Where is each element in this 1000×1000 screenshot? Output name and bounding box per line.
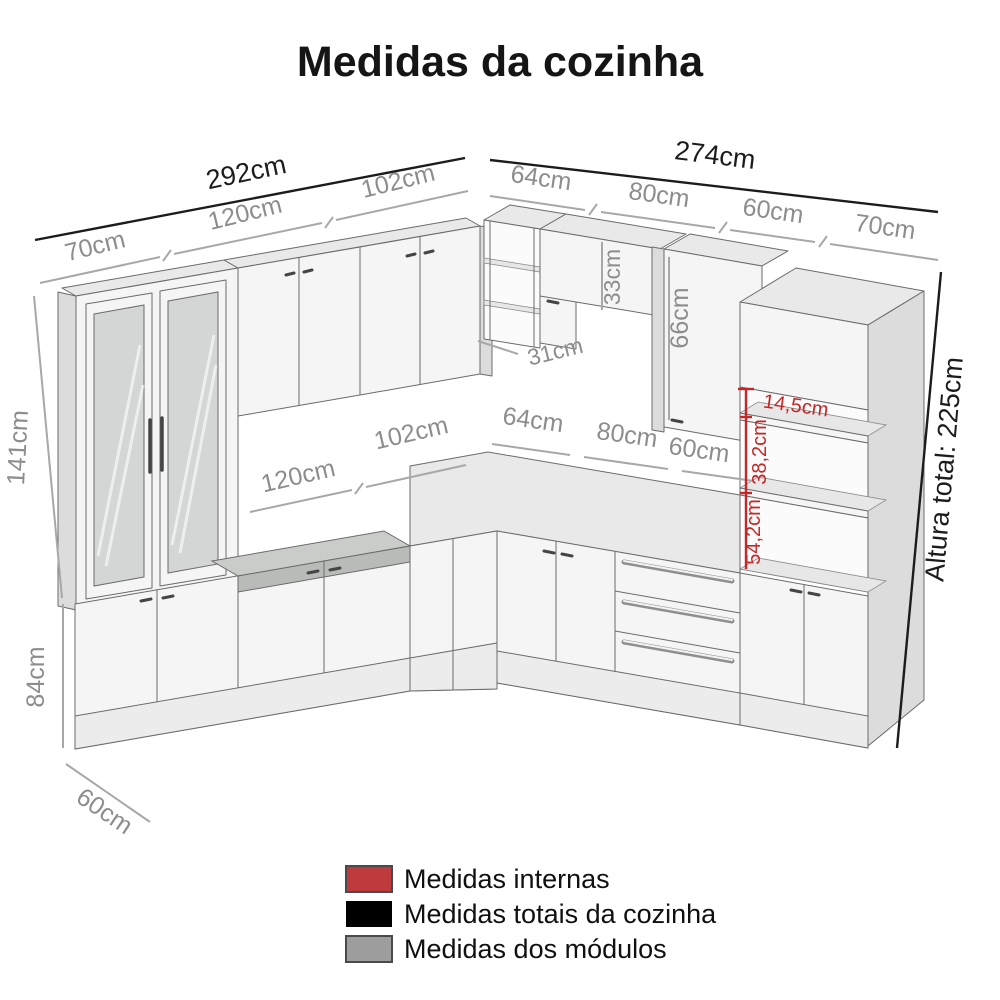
dim-tick — [355, 483, 363, 494]
dim-33: 33cm — [599, 249, 625, 305]
dim-60-top: 60cm — [741, 193, 805, 229]
legend-swatch-internal — [346, 866, 392, 892]
wall-cabinets-left — [224, 218, 492, 416]
legend: Medidas internas Medidas totais da cozin… — [346, 864, 717, 964]
dim-line-64-counter — [492, 444, 570, 455]
legend-label-module: Medidas dos módulos — [404, 934, 667, 964]
dim-total-height: Altura total: 225cm — [919, 356, 969, 583]
dim-line-60-top — [730, 230, 815, 242]
door-handle — [425, 251, 433, 253]
column-side — [868, 291, 924, 746]
dim-292: 292cm — [203, 149, 289, 195]
dim-274: 274cm — [673, 135, 757, 175]
dim-54-2: 54,2cm — [743, 499, 765, 565]
legend-label-total: Medidas totais da cozinha — [404, 899, 717, 929]
dim-tick — [325, 217, 333, 228]
legend-swatch-total — [346, 901, 392, 927]
dim-120-top: 120cm — [205, 191, 285, 236]
legend-swatch-module — [346, 936, 392, 962]
door-handle — [548, 301, 558, 303]
dim-64-top: 64cm — [509, 160, 573, 196]
door-handle — [304, 270, 312, 272]
door-handle — [330, 568, 340, 570]
dim-120-counter: 120cm — [258, 454, 337, 498]
dim-38-2: 38,2cm — [749, 419, 771, 485]
dim-70-left: 70cm — [62, 225, 128, 267]
wall-cabinet-66-side — [652, 247, 664, 432]
door-handle — [809, 593, 819, 595]
tall-cabinet-side — [58, 292, 76, 610]
door-handle — [163, 596, 173, 598]
dim-84: 84cm — [22, 646, 50, 707]
dim-66: 66cm — [666, 287, 694, 348]
door-handle — [562, 554, 572, 556]
door-handle — [407, 254, 415, 256]
dim-line-102-top — [336, 191, 468, 220]
dim-70-right: 70cm — [853, 209, 917, 245]
tall-cabinet — [58, 260, 238, 610]
dim-tick — [589, 204, 597, 215]
legend-label-internal: Medidas internas — [404, 864, 610, 894]
dim-tick — [719, 222, 727, 233]
dim-141: 141cm — [2, 409, 34, 485]
dim-line-80-counter — [584, 457, 668, 469]
door-handle — [286, 273, 294, 275]
door-handle — [791, 590, 801, 592]
corner-shelf-front — [484, 220, 540, 348]
kitchen-diagram-svg: Medidas da cozinha — [0, 0, 1000, 1000]
dim-tick — [819, 236, 827, 247]
column-base — [740, 573, 868, 748]
door-handle — [141, 599, 151, 601]
dim-102-top: 102cm — [358, 159, 438, 204]
door-handle — [308, 571, 318, 573]
page-title: Medidas da cozinha — [297, 38, 704, 86]
base-cabinet-corner — [410, 531, 497, 691]
kitchen-drawing — [58, 205, 924, 749]
door-handle — [672, 420, 682, 422]
dim-80-counter: 80cm — [595, 417, 659, 453]
dim-line-70-right — [830, 244, 938, 260]
door-handle — [544, 551, 554, 553]
dim-64-counter: 64cm — [501, 402, 565, 438]
kitchen-measurements-figure: Medidas da cozinha — [0, 0, 1000, 1000]
dim-102-counter: 102cm — [371, 411, 450, 455]
dim-tick — [163, 250, 171, 261]
